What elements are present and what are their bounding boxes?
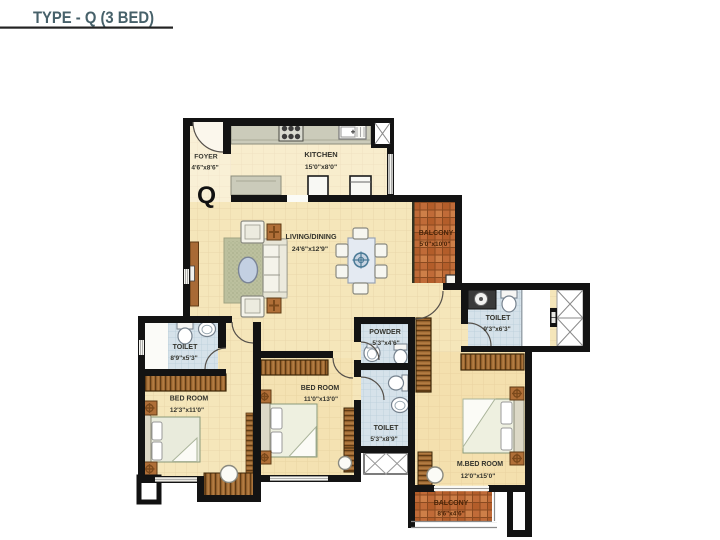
svg-text:KITCHEN: KITCHEN [304,150,337,159]
svg-text:24'6"x12'9": 24'6"x12'9" [292,246,328,253]
svg-text:4'6"x8'6": 4'6"x8'6" [191,165,218,172]
svg-text:BALCONY: BALCONY [419,230,454,237]
svg-text:5'3"x8'9": 5'3"x8'9" [370,436,397,443]
svg-text:5'0"x10'0": 5'0"x10'0" [420,241,451,248]
svg-text:8'6"x4'6": 8'6"x4'6" [437,511,464,518]
svg-text:8'9"x5'3": 8'9"x5'3" [170,355,197,362]
svg-text:TOILET: TOILET [486,315,511,322]
svg-text:TOILET: TOILET [173,344,198,351]
svg-text:11'0"x13'0": 11'0"x13'0" [304,396,338,403]
svg-text:TOILET: TOILET [374,425,399,432]
svg-text:12'0"x15'0": 12'0"x15'0" [461,473,496,480]
svg-text:BED ROOM: BED ROOM [170,396,209,403]
svg-text:Q: Q [197,182,216,209]
svg-text:BALCONY: BALCONY [434,500,469,507]
svg-text:TYPE - Q (3 BED): TYPE - Q (3 BED) [33,9,154,27]
svg-text:9'3"x6'3": 9'3"x6'3" [483,326,510,333]
svg-text:BED ROOM: BED ROOM [301,385,340,392]
svg-text:12'3"x11'0": 12'3"x11'0" [170,407,204,414]
svg-text:15'0"x8'0": 15'0"x8'0" [305,164,337,171]
svg-text:FOYER: FOYER [194,154,218,161]
svg-text:5'3"x4'6": 5'3"x4'6" [372,340,399,347]
svg-text:LIVING/DINING: LIVING/DINING [285,232,337,241]
svg-text:M.BED ROOM: M.BED ROOM [457,461,503,468]
svg-text:POWDER: POWDER [369,329,401,336]
